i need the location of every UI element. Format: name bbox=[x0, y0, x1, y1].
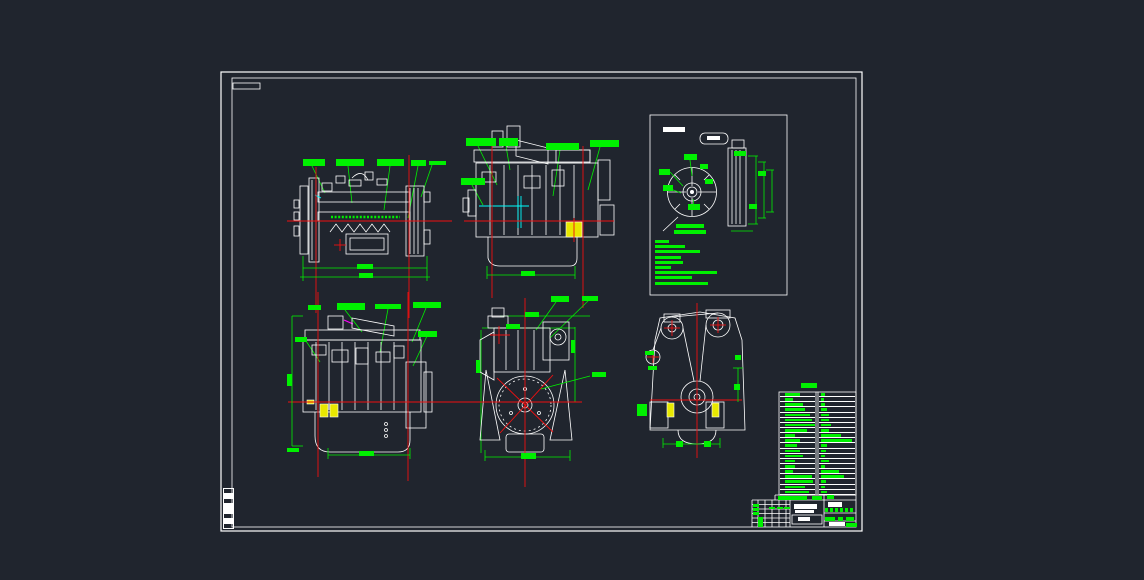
green-text-bar bbox=[688, 204, 700, 210]
green-text-bar bbox=[659, 169, 670, 175]
green-text-bar bbox=[777, 507, 783, 509]
green-text-bar bbox=[753, 508, 759, 511]
green-text-bar bbox=[411, 160, 426, 166]
oil-pan bbox=[315, 412, 410, 452]
spec-value-bar bbox=[785, 419, 812, 422]
green-text-bar bbox=[734, 151, 746, 156]
note-line bbox=[655, 271, 717, 274]
spec-value-bar bbox=[821, 434, 841, 437]
spec-value-bar bbox=[821, 444, 827, 447]
green-text-bar bbox=[359, 273, 373, 278]
flywheel-housing-side bbox=[406, 362, 426, 428]
inset-notes-block bbox=[655, 240, 767, 287]
green-text-bar bbox=[674, 230, 706, 234]
view-bottom-right-front bbox=[646, 303, 745, 458]
green-text-bar bbox=[705, 179, 713, 184]
note-line bbox=[655, 261, 683, 264]
spec-value-bar bbox=[821, 480, 826, 483]
green-text-bar bbox=[684, 154, 697, 160]
spec-value-bar bbox=[785, 450, 800, 453]
green-text-bar bbox=[850, 508, 853, 512]
engine-block bbox=[303, 340, 421, 412]
green-text-bar bbox=[801, 383, 817, 388]
spec-value-bar bbox=[821, 491, 827, 494]
white-text-bar bbox=[795, 510, 814, 513]
green-text-bar bbox=[838, 517, 843, 521]
outer-border bbox=[221, 72, 862, 531]
white-text-bar bbox=[828, 502, 842, 507]
green-text-bar bbox=[437, 161, 446, 165]
spec-value-bar bbox=[821, 403, 825, 406]
green-text-bar bbox=[592, 372, 606, 377]
green-text-bar bbox=[753, 512, 759, 515]
white-text-bar bbox=[798, 517, 810, 521]
spec-value-bar bbox=[821, 460, 829, 463]
spec-value-bar bbox=[785, 403, 803, 406]
green-text-bar bbox=[645, 351, 654, 355]
spec-value-bar bbox=[785, 475, 812, 478]
spec-value-bar bbox=[785, 429, 807, 432]
oil-pan bbox=[488, 237, 577, 266]
spec-value-bar bbox=[821, 419, 829, 422]
green-text-bar bbox=[582, 296, 598, 301]
view-top-middle-side bbox=[463, 126, 614, 308]
spec-value-bar bbox=[785, 393, 800, 396]
green-text-bar bbox=[784, 507, 790, 509]
note-line bbox=[655, 266, 671, 269]
green-text-bar bbox=[700, 164, 708, 169]
spec-row bbox=[780, 490, 815, 495]
green-text-bar bbox=[377, 159, 404, 166]
green-text-bar bbox=[825, 517, 835, 521]
spec-value-bar bbox=[785, 398, 793, 401]
white-text-bar bbox=[707, 136, 720, 140]
green-text-bar bbox=[840, 508, 843, 512]
green-text-bar bbox=[845, 508, 848, 512]
spec-value-bar bbox=[785, 444, 797, 447]
spec-value-bar bbox=[785, 439, 800, 442]
spec-value-bar bbox=[821, 439, 852, 442]
spec-value-bar bbox=[785, 460, 795, 463]
spec-value-bar bbox=[785, 414, 810, 417]
green-text-bar bbox=[295, 337, 307, 342]
green-text-bar bbox=[375, 304, 401, 309]
spec-value-bar bbox=[821, 450, 826, 453]
green-text-bar bbox=[337, 303, 365, 310]
green-text-bar bbox=[769, 507, 775, 509]
spec-value-bar bbox=[821, 424, 831, 427]
spec-value-bar bbox=[821, 414, 829, 417]
green-text-bar bbox=[551, 296, 569, 302]
green-text-bar bbox=[704, 441, 711, 447]
oil-pan bbox=[346, 234, 388, 254]
spec-value-bar bbox=[821, 429, 829, 432]
green-text-bar bbox=[521, 453, 536, 459]
spec-value-bar bbox=[821, 398, 824, 401]
green-text-bar bbox=[506, 324, 520, 329]
view-top-left-side bbox=[287, 155, 452, 318]
engine-front-outline bbox=[650, 312, 745, 430]
spec-value-bar bbox=[785, 434, 795, 437]
white-text-bar bbox=[794, 504, 817, 509]
green-text-bar bbox=[846, 517, 854, 521]
green-text-bar bbox=[758, 517, 763, 527]
green-text-bar bbox=[418, 331, 437, 337]
spec-value-bar bbox=[821, 465, 825, 468]
green-text-bar bbox=[830, 508, 833, 512]
green-text-bar bbox=[778, 496, 807, 500]
spec-value-bar bbox=[785, 424, 815, 427]
cad-canvas bbox=[0, 0, 1144, 580]
note-line bbox=[655, 250, 700, 253]
green-text-bar bbox=[308, 305, 321, 310]
manifold-zigzag bbox=[330, 224, 390, 232]
green-text-bar bbox=[637, 404, 647, 416]
white-text-bar bbox=[663, 127, 685, 132]
spec-value-bar bbox=[785, 455, 803, 458]
drawing-sheet bbox=[0, 0, 1144, 580]
margin-mark bbox=[223, 523, 234, 529]
white-text-bar bbox=[829, 522, 845, 526]
view-bottom-left-side bbox=[288, 292, 462, 481]
green-text-bar bbox=[825, 508, 828, 512]
spec-value-bar bbox=[785, 408, 805, 411]
green-text-bar bbox=[676, 224, 704, 228]
note-line bbox=[655, 240, 669, 243]
green-text-bar bbox=[648, 366, 657, 370]
green-text-bar bbox=[663, 185, 673, 191]
spec-row bbox=[819, 490, 855, 495]
green-text-bar bbox=[287, 448, 299, 452]
yellow-highlight bbox=[712, 403, 719, 417]
green-text-bar bbox=[676, 441, 683, 447]
green-text-bar bbox=[812, 496, 822, 500]
spec-value-bar bbox=[821, 408, 827, 411]
spec-value-bar bbox=[821, 475, 844, 478]
inner-border bbox=[232, 78, 856, 527]
spec-value-bar bbox=[785, 480, 813, 483]
green-text-bar bbox=[359, 451, 374, 456]
green-text-bar bbox=[357, 264, 373, 269]
spec-value-bar bbox=[821, 470, 839, 473]
spec-value-bar bbox=[821, 486, 825, 489]
spec-value-bar bbox=[785, 465, 795, 468]
green-text-bar bbox=[499, 138, 518, 146]
green-text-bar bbox=[734, 384, 740, 390]
green-text-bar bbox=[571, 340, 575, 353]
spec-value-bar bbox=[785, 486, 805, 489]
green-text-bar bbox=[546, 143, 579, 150]
spec-value-bar bbox=[785, 491, 809, 494]
green-text-bar bbox=[827, 495, 834, 499]
green-text-bar bbox=[413, 302, 441, 308]
note-line bbox=[655, 245, 685, 248]
green-text-bar bbox=[525, 312, 539, 317]
note-line bbox=[655, 256, 681, 259]
green-text-bar bbox=[753, 504, 759, 507]
spec-value-bar bbox=[785, 470, 793, 473]
spec-table-right-column bbox=[819, 392, 855, 495]
spec-value-bar bbox=[821, 393, 825, 396]
green-text-bar bbox=[590, 140, 619, 147]
engine-rail bbox=[318, 192, 410, 202]
note-line bbox=[655, 282, 708, 285]
yellow-highlight bbox=[320, 404, 328, 417]
green-text-bar bbox=[835, 508, 838, 512]
green-text-bar bbox=[758, 171, 766, 176]
green-text-bar bbox=[466, 138, 496, 146]
note-line bbox=[655, 276, 692, 279]
green-text-bar bbox=[287, 374, 292, 386]
green-text-bar bbox=[303, 159, 325, 166]
sheet-frame bbox=[221, 72, 862, 531]
yellow-highlight bbox=[330, 404, 338, 417]
pulley-side bbox=[728, 148, 746, 226]
corner-tab bbox=[233, 83, 260, 89]
yellow-highlight bbox=[667, 403, 674, 417]
green-text-bar bbox=[846, 523, 857, 527]
spec-table-left-column bbox=[780, 392, 815, 495]
green-text-bar bbox=[735, 355, 741, 360]
spec-value-bar bbox=[821, 455, 825, 458]
green-text-bar bbox=[749, 204, 757, 209]
green-text-bar bbox=[476, 360, 480, 373]
green-text-bar bbox=[336, 159, 364, 166]
green-text-bar bbox=[521, 271, 535, 276]
green-text-bar bbox=[461, 178, 485, 185]
